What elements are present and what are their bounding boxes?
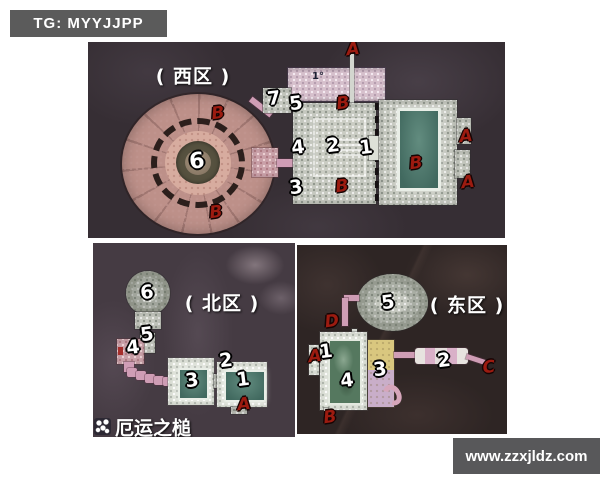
map-marker-point-4: 4 [290, 138, 305, 158]
map-marker-point-6: 6 [188, 150, 206, 174]
paw-print-icon [94, 418, 111, 435]
map-marker-exit-A: A [345, 42, 360, 59]
map-marker-point-2: 2 [218, 351, 233, 371]
west-corridor-to-building [277, 159, 294, 167]
map-marker-point-2: 2 [325, 136, 340, 156]
map-marker-exit-C: C [482, 359, 496, 377]
map-marker-point-4: 4 [125, 338, 140, 358]
map-panel-east-zone: ( 东区 ) 51432DABC [297, 245, 507, 434]
map-marker-point-5: 5 [139, 325, 154, 345]
north-west-room-red-spot [118, 347, 123, 355]
watermark-badge: www.zzxjldz.com [453, 438, 600, 474]
map-marker-exit-D: D [324, 313, 340, 332]
map-marker-exit-B: B [209, 204, 224, 222]
zone-label-north: ( 北区 ) [185, 289, 260, 316]
map-marker-exit-A: A [307, 348, 322, 366]
map-marker-point-4: 4 [339, 371, 354, 391]
map-marker-point-3: 3 [288, 178, 303, 198]
zone-label-west: ( 西区 ) [156, 62, 231, 89]
map-marker-point-1°: 1° [312, 72, 324, 82]
map-marker-point-7: 7 [266, 89, 281, 109]
map-panel-north-zone: ( 北区 ) 厄运之槌 654321A [93, 243, 295, 437]
map-marker-point-6: 6 [139, 283, 154, 303]
zone-label-east: ( 东区 ) [430, 291, 505, 318]
tg-contact-label: TG: MYYJJPP [33, 15, 143, 32]
map-marker-point-3: 3 [184, 371, 199, 391]
map-marker-point-5: 5 [380, 293, 395, 313]
west-arena-east-annex [252, 148, 278, 177]
map-marker-point-3: 3 [372, 360, 387, 380]
map-marker-exit-A: A [460, 174, 475, 192]
map-marker-exit-A: A [236, 396, 251, 414]
map-marker-point-1: 1 [235, 370, 250, 390]
map-marker-point-1: 1 [358, 138, 373, 158]
east-corridor-connector [394, 352, 415, 358]
map-marker-exit-A: A [458, 128, 473, 146]
tg-contact-badge: TG: MYYJJPP [10, 10, 167, 37]
map-marker-exit-B: B [323, 409, 338, 427]
watermark-label: www.zzxjldz.com [466, 448, 588, 465]
east-pipe-vertical-d [342, 298, 348, 326]
map-marker-exit-B: B [211, 105, 226, 123]
west-pool [397, 108, 441, 191]
dungeon-title: 厄运之槌 [115, 414, 191, 438]
page: { "badge": {"label": "TG: MYYJJPP"}, "wa… [0, 0, 600, 480]
map-panel-west-zone: ( 西区 ) 6754213BBBBBAAA1° [88, 42, 505, 238]
map-marker-point-5: 5 [288, 94, 303, 114]
map-marker-exit-B: B [335, 178, 350, 196]
west-exit-pipe-a [350, 54, 354, 104]
map-marker-exit-B: B [409, 155, 424, 173]
map-marker-point-2: 2 [436, 351, 451, 371]
map-marker-exit-B: B [336, 95, 351, 113]
